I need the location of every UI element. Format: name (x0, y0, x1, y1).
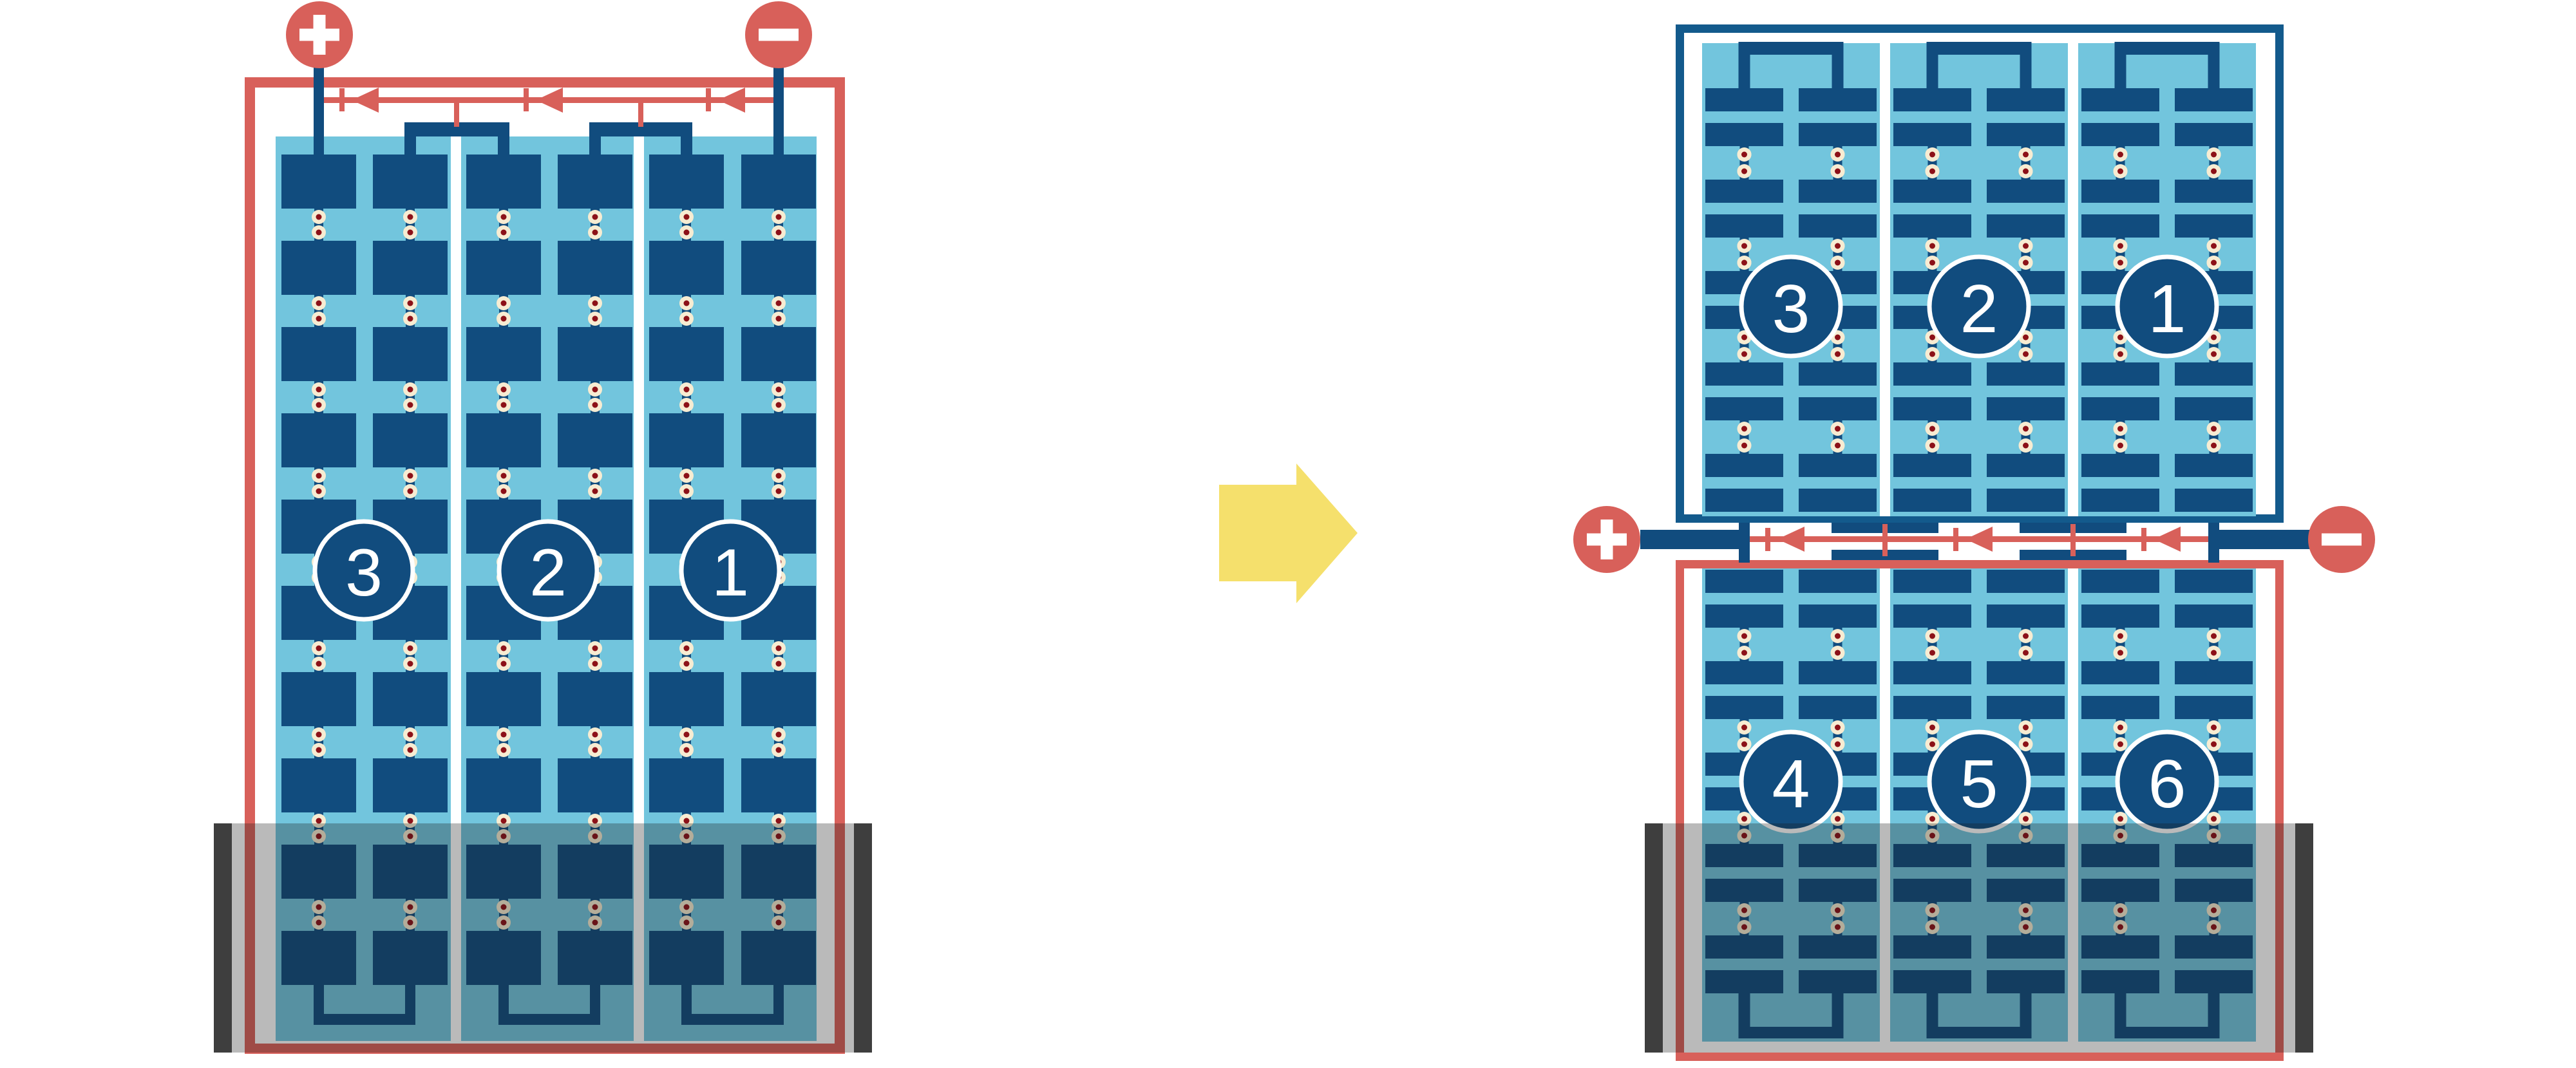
rivet-dot (1741, 650, 1747, 656)
rivet-dot (1741, 443, 1747, 449)
top-connector-bar (1739, 42, 1844, 55)
plate (281, 327, 356, 381)
cell-bridge-leg (404, 122, 416, 156)
rivet-dot (776, 316, 782, 322)
plate (1987, 489, 2065, 512)
rivet-dot (501, 489, 507, 494)
plate (1893, 570, 1971, 593)
rivet-dot (501, 387, 507, 393)
rivet-dot (408, 661, 413, 667)
top-connector-leg (1739, 55, 1750, 88)
rivet-dot (684, 818, 690, 824)
cell-number: 4 (1772, 746, 1810, 822)
cell-number: 6 (2148, 746, 2186, 822)
current-arrowhead (2154, 527, 2181, 552)
rivet-dot (2211, 650, 2217, 656)
rivet-dot (2211, 243, 2217, 249)
rivet-dot (1835, 443, 1841, 449)
cell-number: 1 (2148, 271, 2186, 347)
rivet-dot (1741, 742, 1747, 747)
rivet-dot (2023, 725, 2029, 731)
plate (1893, 489, 1971, 512)
rivet-dot (2211, 169, 2217, 174)
plate (2175, 489, 2253, 512)
flood-edge-bar (2295, 823, 2313, 1053)
plate (741, 241, 816, 295)
rivet-dot (1929, 443, 1935, 449)
rivet-dot (2023, 335, 2029, 341)
cell-separator (2068, 43, 2078, 516)
rivet-dot (2211, 260, 2217, 266)
current-tick (2141, 528, 2146, 551)
rivet-dot (2023, 351, 2029, 357)
rivet-dot (2023, 426, 2029, 432)
plate (1893, 88, 1971, 111)
rivet-dot (408, 301, 413, 306)
rivet-dot (316, 301, 322, 306)
rivet-dot (776, 214, 782, 220)
bridge-stub (638, 100, 643, 127)
rivet-dot (1929, 742, 1935, 747)
rivet-dot (684, 646, 690, 651)
rivet-dot (1741, 816, 1747, 822)
plate (1987, 570, 2065, 593)
rivet-dot (2117, 443, 2123, 449)
rivet-dot (316, 402, 322, 408)
rivet-dot (684, 489, 690, 494)
rivet-dot (776, 646, 782, 651)
rivet-dot (316, 316, 322, 322)
rivet-dot (1835, 243, 1841, 249)
current-arrowhead (352, 88, 379, 113)
rivet-dot (2023, 243, 2029, 249)
rivet-dot (592, 661, 598, 667)
rivet-dot (501, 732, 507, 738)
rivet-dot (1929, 426, 1935, 432)
rivet-dot (1835, 260, 1841, 266)
rivet-dot (1741, 426, 1747, 432)
rivet-dot (2211, 426, 2217, 432)
rivet-dot (2117, 633, 2123, 639)
plate (558, 327, 632, 381)
inter-battery-connector (1739, 523, 1750, 563)
terminal-post (1640, 530, 1739, 549)
rivet-dot (592, 402, 598, 408)
rivet-dot (2117, 742, 2123, 747)
rivet-dot (684, 661, 690, 667)
current-arrowhead (1965, 527, 1993, 552)
cell-number: 1 (712, 536, 749, 610)
battery-flood-diagram: +−321 +−321456 (0, 0, 2576, 1068)
plate (2081, 88, 2159, 111)
rivet-dot (2023, 650, 2029, 656)
plate (281, 413, 356, 467)
plate (649, 155, 724, 209)
rivet-dot (2211, 725, 2217, 731)
flood-water-overlay (214, 823, 872, 1053)
current-tick (1953, 528, 1958, 551)
cell-number: 5 (1960, 746, 1998, 822)
rivet-dot (1741, 169, 1747, 174)
terminal-glyph (759, 29, 799, 41)
rivet-dot (2117, 816, 2123, 822)
bridge-stub (454, 100, 459, 127)
plate (2081, 570, 2159, 593)
left-battery: +−321 (214, 1, 872, 1053)
terminal-glyph (1601, 520, 1613, 559)
rivet-dot (684, 747, 690, 753)
current-tick (706, 88, 711, 111)
rivet-dot (316, 489, 322, 494)
rivet-dot (592, 732, 598, 738)
rivet-dot (1741, 243, 1747, 249)
minus-icon: − (759, 29, 799, 41)
current-arrowhead (1777, 527, 1804, 552)
diagram-canvas: +−321 +−321456 (0, 0, 2576, 1068)
rivet-dot (1835, 816, 1841, 822)
rivet-dot (592, 473, 598, 479)
rivet-dot (684, 301, 690, 306)
plate (741, 155, 816, 209)
plate (649, 413, 724, 467)
minus-icon: − (2322, 534, 2362, 546)
rivet-dot (501, 402, 507, 408)
rivet-dot (1835, 633, 1841, 639)
rivet-dot (1741, 725, 1747, 731)
plate (1799, 570, 1877, 593)
cell-number: 2 (1960, 271, 1998, 347)
rivet-dot (776, 402, 782, 408)
rivet-dot (1835, 152, 1841, 158)
rivet-dot (684, 214, 690, 220)
rivet-dot (592, 387, 598, 393)
rivet-dot (592, 818, 598, 824)
plate (466, 155, 541, 209)
rivet-dot (2211, 351, 2217, 357)
plate (373, 241, 448, 295)
rivet-dot (1835, 335, 1841, 341)
rivet-dot (1929, 152, 1935, 158)
cell-number: 2 (529, 536, 567, 610)
right-block-arrow-icon (1219, 464, 1358, 603)
rivet-dot (408, 489, 413, 494)
plate (466, 413, 541, 467)
plate (466, 327, 541, 381)
rivet-dot (408, 747, 413, 753)
rivet-dot (684, 387, 690, 393)
rivet-dot (1835, 725, 1841, 731)
terminal-post (314, 64, 324, 156)
plate (1705, 88, 1783, 111)
rivet-dot (501, 230, 507, 236)
rivet-dot (1741, 633, 1747, 639)
rivet-dot (1929, 335, 1935, 341)
plate (741, 758, 816, 812)
cell-bridge-leg (681, 122, 692, 156)
top-connector-leg (1832, 55, 1844, 88)
rivet-dot (1929, 650, 1935, 656)
rivet-dot (776, 473, 782, 479)
terminal-post (773, 64, 784, 156)
rivet-dot (1929, 243, 1935, 249)
current-arrowhead (718, 88, 745, 113)
rivet-dot (684, 473, 690, 479)
rivet-dot (501, 214, 507, 220)
plate (649, 672, 724, 726)
plate (1987, 88, 2065, 111)
plate (373, 155, 448, 209)
rivet-dot (2023, 742, 2029, 747)
rivet-dot (2117, 351, 2123, 357)
rivet-dot (684, 732, 690, 738)
plate (649, 241, 724, 295)
plate (466, 241, 541, 295)
rivet-dot (2211, 443, 2217, 449)
plate (281, 241, 356, 295)
rivet-dot (408, 387, 413, 393)
rivet-dot (2211, 742, 2217, 747)
rivet-dot (2117, 169, 2123, 174)
top-connector-bar (1927, 42, 2032, 55)
plate (2081, 489, 2159, 512)
rivet-dot (592, 489, 598, 494)
rivet-dot (408, 230, 413, 236)
plate (741, 413, 816, 467)
rivet-dot (2211, 633, 2217, 639)
rivet-dot (501, 747, 507, 753)
rivet-dot (2117, 426, 2123, 432)
plate (373, 327, 448, 381)
rivet-dot (592, 316, 598, 322)
rivet-dot (316, 661, 322, 667)
rivet-dot (2023, 260, 2029, 266)
plate (1705, 489, 1783, 512)
plate (558, 672, 632, 726)
plate (2175, 570, 2253, 593)
rivet-dot (592, 230, 598, 236)
flood-edge-bar (1645, 823, 1663, 1053)
rivet-dot (2117, 152, 2123, 158)
rivet-dot (316, 646, 322, 651)
cell-separator (1880, 43, 1890, 516)
rivet-dot (408, 732, 413, 738)
plate (741, 327, 816, 381)
rivet-dot (316, 473, 322, 479)
rivet-dot (2023, 633, 2029, 639)
rivet-dot (1741, 351, 1747, 357)
flood-edge-bar (854, 823, 872, 1053)
rivet-dot (2023, 169, 2029, 174)
current-tick (339, 88, 345, 111)
current-tick (1765, 528, 1770, 551)
rivet-dot (2117, 650, 2123, 656)
current-tick (524, 88, 529, 111)
rivet-dot (684, 316, 690, 322)
rivet-dot (776, 230, 782, 236)
rivet-dot (408, 316, 413, 322)
plate (558, 241, 632, 295)
bridge-stub (1882, 524, 1888, 556)
rivet-dot (1835, 426, 1841, 432)
bridge-stub (2070, 524, 2076, 556)
plate (649, 758, 724, 812)
rivet-dot (1835, 650, 1841, 656)
rivet-dot (1741, 335, 1747, 341)
rivet-dot (1929, 169, 1935, 174)
rivet-dot (316, 747, 322, 753)
top-connector-leg (1927, 55, 1938, 88)
rivet-dot (316, 214, 322, 220)
plate (1799, 88, 1877, 111)
rivet-dot (2117, 335, 2123, 341)
rivet-dot (408, 818, 413, 824)
rivet-dot (592, 747, 598, 753)
rivet-dot (501, 301, 507, 306)
rivet-dot (776, 818, 782, 824)
rivet-dot (408, 214, 413, 220)
rivet-dot (501, 473, 507, 479)
plate (2175, 88, 2253, 111)
rivet-dot (408, 473, 413, 479)
rivet-dot (1929, 351, 1935, 357)
rivet-dot (1741, 260, 1747, 266)
rivet-dot (316, 818, 322, 824)
flood-edge-bar (214, 823, 232, 1053)
rivet-dot (316, 732, 322, 738)
plate (558, 413, 632, 467)
flood-water-overlay (1645, 823, 2313, 1053)
rivet-dot (501, 818, 507, 824)
plate (466, 758, 541, 812)
rivet-dot (776, 732, 782, 738)
rivet-dot (1929, 260, 1935, 266)
rivet-dot (1835, 742, 1841, 747)
cell-bridge-leg (589, 122, 601, 156)
cell-number: 3 (345, 536, 383, 610)
cell-number: 3 (1772, 271, 1810, 347)
rivet-dot (776, 489, 782, 494)
rivet-dot (408, 646, 413, 651)
inter-battery-connector (2208, 523, 2219, 563)
rivet-dot (501, 661, 507, 667)
rivet-dot (592, 214, 598, 220)
terminal-post (2219, 530, 2316, 549)
rivet-dot (2211, 335, 2217, 341)
rivet-dot (2117, 243, 2123, 249)
top-connector-bar (2115, 42, 2220, 55)
plate (1705, 570, 1783, 593)
rivet-dot (776, 661, 782, 667)
terminal-glyph (314, 15, 326, 55)
rivet-dot (776, 387, 782, 393)
rivet-dot (2211, 816, 2217, 822)
terminal-glyph (2322, 534, 2362, 546)
plate (281, 758, 356, 812)
transform-arrow (1219, 464, 1358, 603)
rivet-dot (776, 301, 782, 306)
rivet-dot (2023, 816, 2029, 822)
rivet-dot (1835, 169, 1841, 174)
plate (558, 758, 632, 812)
plate (1799, 489, 1877, 512)
top-connector-leg (2020, 55, 2032, 88)
rivet-dot (2211, 152, 2217, 158)
plate (649, 327, 724, 381)
top-connector-leg (2115, 55, 2126, 88)
plate (741, 672, 816, 726)
plate (373, 758, 448, 812)
rivet-dot (501, 646, 507, 651)
rivet-dot (684, 230, 690, 236)
right-battery-stack: +−321456 (1573, 29, 2375, 1057)
rivet-dot (776, 747, 782, 753)
rivet-dot (1741, 152, 1747, 158)
plate (281, 155, 356, 209)
rivet-dot (1929, 816, 1935, 822)
rivet-dot (2023, 152, 2029, 158)
rivet-dot (408, 402, 413, 408)
rivet-dot (2117, 260, 2123, 266)
plate (373, 413, 448, 467)
current-arrowhead (536, 88, 563, 113)
plate (373, 672, 448, 726)
rivet-dot (684, 402, 690, 408)
rivet-dot (1929, 725, 1935, 731)
rivet-dot (1835, 351, 1841, 357)
rivet-dot (316, 387, 322, 393)
rivet-dot (2023, 443, 2029, 449)
rivet-dot (592, 646, 598, 651)
plate (281, 672, 356, 726)
plate (466, 672, 541, 726)
rivet-dot (592, 301, 598, 306)
plate (558, 155, 632, 209)
rivet-dot (501, 316, 507, 322)
rivet-dot (1929, 633, 1935, 639)
rivet-dot (2117, 725, 2123, 731)
cell-bridge-leg (498, 122, 509, 156)
rivet-dot (316, 230, 322, 236)
top-connector-leg (2208, 55, 2220, 88)
